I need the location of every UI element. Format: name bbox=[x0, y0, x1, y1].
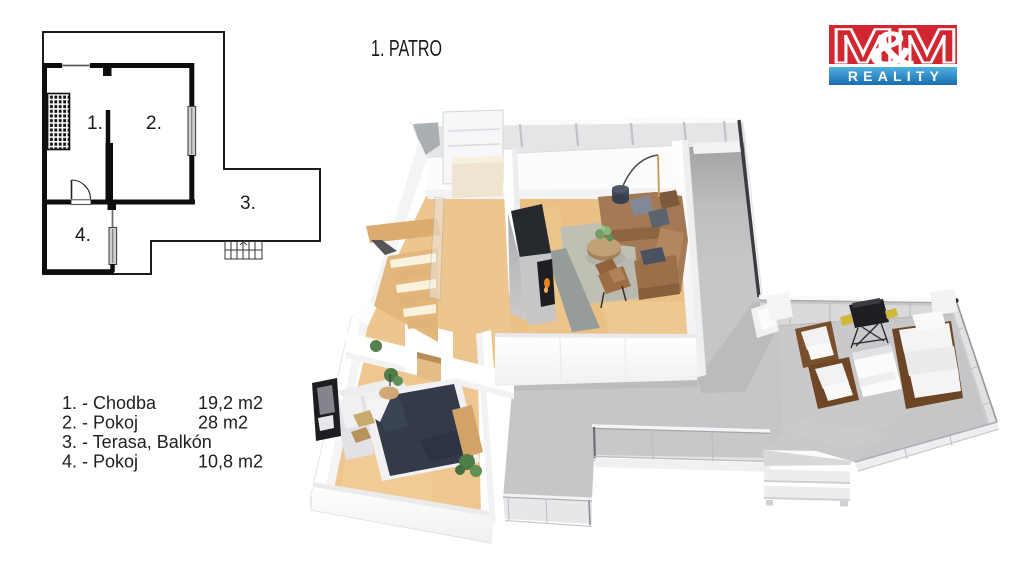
svg-text:2.: 2. bbox=[146, 113, 162, 134]
svg-text:3.: 3. bbox=[240, 193, 256, 214]
svg-text:3. - Terasa, Balkón: 3. - Terasa, Balkón bbox=[62, 432, 212, 452]
svg-text:1. PATRO: 1. PATRO bbox=[371, 35, 442, 61]
svg-text:19,2 m2: 19,2 m2 bbox=[198, 393, 263, 413]
svg-text:4. - Pokoj: 4. - Pokoj bbox=[62, 452, 138, 472]
svg-text:10,8 m2: 10,8 m2 bbox=[198, 452, 263, 472]
svg-text:4.: 4. bbox=[75, 225, 91, 246]
svg-text:1.: 1. bbox=[87, 113, 103, 134]
svg-text:28 m2: 28 m2 bbox=[198, 413, 248, 433]
svg-text:REALITY: REALITY bbox=[848, 68, 944, 84]
svg-text:1. - Chodba: 1. - Chodba bbox=[62, 393, 157, 413]
svg-text:2. - Pokoj: 2. - Pokoj bbox=[62, 413, 138, 433]
